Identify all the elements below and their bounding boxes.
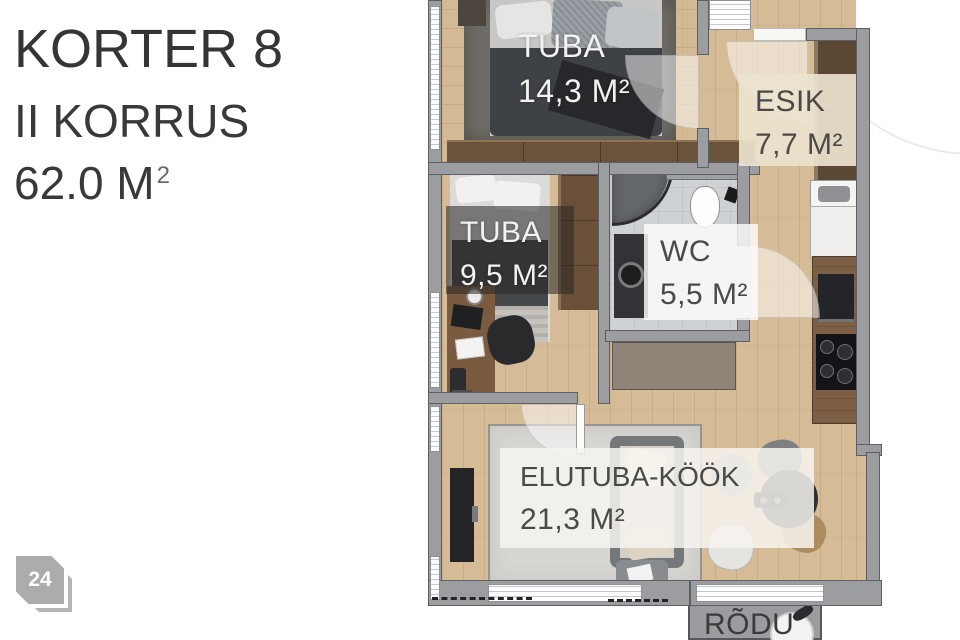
- window: [430, 6, 440, 150]
- section-cut-line: [608, 599, 668, 602]
- room-label-wc: WC 5,5 M²: [644, 224, 758, 320]
- room-name: TUBA: [460, 218, 560, 248]
- tv-panel: [450, 468, 474, 562]
- section-cut-line: [432, 597, 532, 600]
- washer-drum: [618, 262, 644, 288]
- room-label-tuba-14: TUBA 14,3 M²: [518, 30, 630, 107]
- balcony-window: [696, 584, 824, 602]
- sink: [818, 186, 850, 202]
- pillow: [455, 174, 497, 204]
- room-name: TUBA: [518, 30, 630, 62]
- washing-machine: [614, 234, 648, 318]
- laptop: [451, 304, 484, 330]
- burner-icon: [837, 344, 853, 360]
- nightstand: [458, 0, 486, 26]
- room-label-tuba-9: TUBA 9,5 M²: [446, 206, 574, 294]
- wall: [697, 128, 709, 168]
- burner-icon: [820, 340, 834, 354]
- cooktop: [816, 334, 856, 390]
- kitchen-counter-white: [810, 206, 858, 258]
- entry-sidelight-window: [709, 0, 751, 30]
- papers: [455, 336, 485, 359]
- wall: [598, 162, 610, 404]
- window: [430, 556, 440, 600]
- room-name: ELUTUBA-KÖÖK: [520, 463, 794, 491]
- room-name: WC: [660, 237, 742, 267]
- room-area: 14,3 M²: [518, 75, 630, 107]
- room-area: 7,7 M²: [755, 130, 840, 160]
- wall: [428, 162, 760, 175]
- oven: [818, 274, 854, 322]
- wall: [605, 330, 750, 342]
- room-label-elutuba: ELUTUBA-KÖÖK 21,3 M²: [500, 448, 814, 548]
- burner-icon: [837, 368, 853, 384]
- entry-door-threshold: [753, 28, 806, 41]
- window: [430, 406, 440, 452]
- toilet: [690, 186, 720, 228]
- wall: [856, 28, 870, 452]
- floor-plan: TUBA 14,3 M² TUBA 9,5 M² ESIK 7,7 M² WC …: [0, 0, 960, 640]
- room-label-esik: ESIK 7,7 M²: [739, 74, 856, 166]
- room-area: 21,3 M²: [520, 505, 794, 535]
- burner-icon: [820, 364, 834, 378]
- floorplan-page: KORTER 8 II KORRUS 62.0 M2 24: [0, 0, 960, 640]
- room-name: ESIK: [755, 87, 840, 117]
- room-area: 5,5 M²: [660, 280, 742, 310]
- sideboard: [612, 342, 736, 390]
- room-area: 9,5 M²: [460, 261, 560, 291]
- wall: [697, 0, 709, 55]
- room-label-rodu: RÕDU: [704, 610, 794, 640]
- tv-mount: [472, 506, 478, 522]
- room-name: RÕDU: [704, 608, 794, 640]
- wall: [428, 392, 578, 404]
- livingroom-door-leaf: [576, 404, 585, 454]
- kitchen-sink-unit: [810, 180, 858, 208]
- window: [430, 292, 440, 388]
